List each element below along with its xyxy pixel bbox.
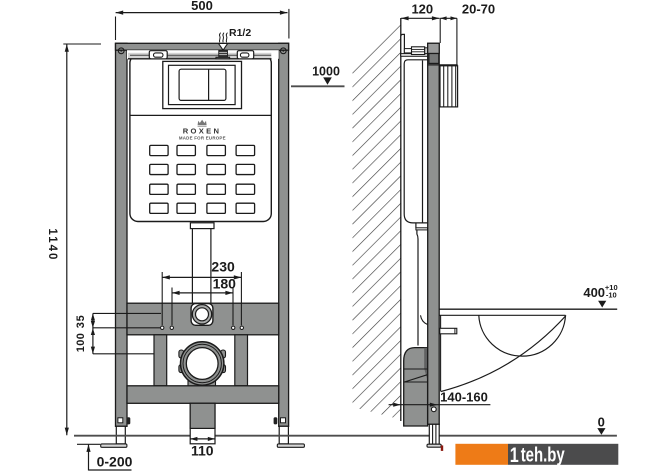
svg-text:-10: -10 (606, 291, 617, 300)
svg-text:400: 400 (583, 285, 605, 300)
svg-text:500: 500 (191, 0, 213, 13)
svg-text:1: 1 (510, 444, 519, 467)
svg-text:140-160: 140-160 (440, 390, 488, 405)
svg-text:1000: 1000 (312, 65, 340, 79)
svg-text:teh.by: teh.by (521, 444, 566, 466)
svg-text:180: 180 (213, 276, 237, 292)
svg-text:1140: 1140 (46, 228, 58, 261)
svg-text:120: 120 (411, 2, 433, 17)
svg-text:20-70: 20-70 (462, 2, 495, 17)
svg-text:110: 110 (191, 443, 214, 459)
svg-text:0: 0 (598, 414, 605, 429)
svg-text:100: 100 (75, 333, 87, 353)
svg-text:MADE FOR EUROPE: MADE FOR EUROPE (179, 136, 226, 141)
svg-text:ROXEN: ROXEN (183, 127, 222, 136)
svg-text:35: 35 (75, 315, 87, 329)
svg-text:230: 230 (211, 259, 235, 275)
svg-text:0-200: 0-200 (97, 453, 133, 469)
svg-text:R1/2: R1/2 (229, 27, 251, 39)
